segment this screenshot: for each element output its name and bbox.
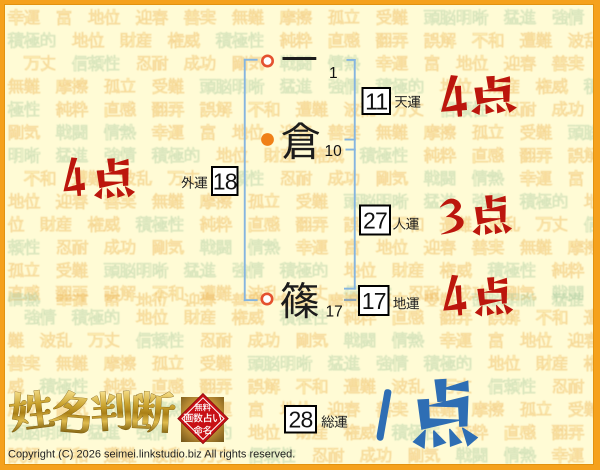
svg-text:27: 27 — [363, 207, 387, 233]
svg-text:10: 10 — [325, 143, 343, 160]
svg-text:1: 1 — [329, 65, 338, 82]
svg-text:18: 18 — [213, 168, 237, 194]
svg-text:Copyright (C) 2026 seimei.link: Copyright (C) 2026 seimei.linkstudio.biz… — [8, 449, 295, 461]
svg-text:17: 17 — [326, 304, 343, 321]
svg-text:11: 11 — [365, 88, 387, 114]
svg-text:28: 28 — [289, 407, 313, 433]
svg-text:17: 17 — [362, 288, 386, 314]
